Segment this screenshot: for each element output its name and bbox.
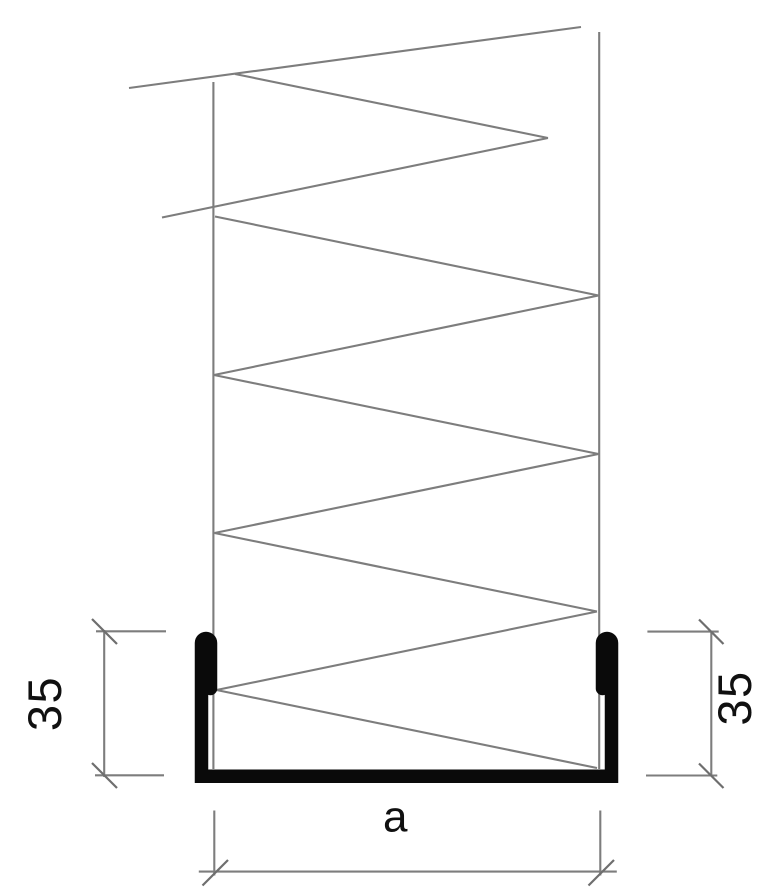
svg-text:35: 35: [18, 676, 71, 731]
svg-text:35: 35: [708, 670, 761, 725]
svg-text:a: a: [383, 793, 408, 842]
